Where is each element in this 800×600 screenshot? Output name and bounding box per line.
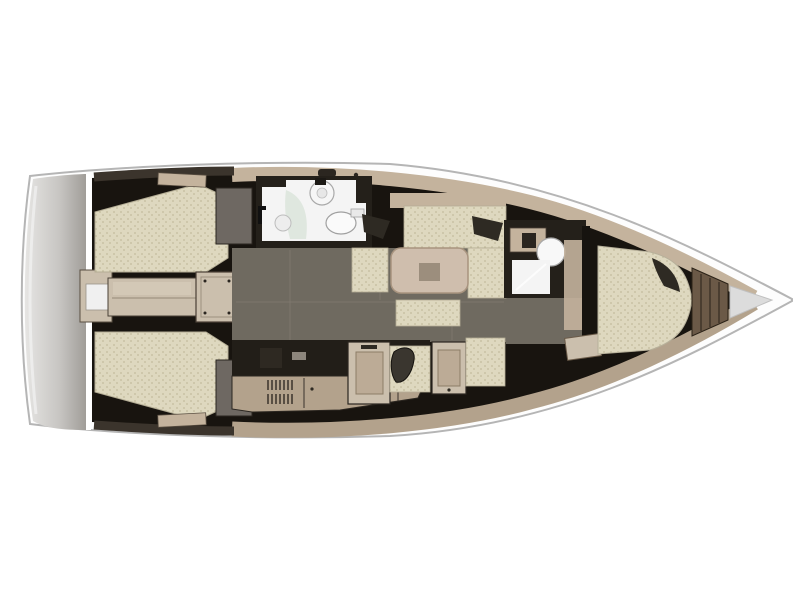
fridge-door-panel [356,352,383,394]
handle-icon [310,387,313,390]
settee-right-bench [468,248,506,298]
aft-head [256,176,372,248]
floor-plan-canvas [0,0,800,600]
fridge-handle [361,345,377,349]
cabin-shelf [158,173,207,187]
galley-sink [260,348,282,368]
galley-stove-icon [292,352,306,360]
toilet-tank [351,209,364,217]
companionway-landing [196,272,238,322]
washbasin-drain-icon [317,188,327,198]
sole-plank [113,282,191,295]
screw-icon [228,280,231,283]
vanity-sink [522,233,536,248]
deck-hatch-icon [318,169,336,177]
wardrobe [216,188,252,244]
nav-station [390,338,505,394]
shower-drain-icon [275,215,291,231]
handle-icon [447,388,450,391]
settee-bottom-bench [396,300,460,326]
screw-icon [228,312,231,315]
cabin-door-panel [565,334,602,361]
settee-left-bench [352,248,388,292]
salon-table-inlay [419,263,440,281]
yacht-floor-plan [0,0,800,600]
cabin-shelf [158,413,207,427]
chart-table-panel [438,350,460,386]
tap-icon [258,210,262,224]
starboard-settee [466,338,505,386]
tap-icon [258,206,266,210]
stern-hatch [86,284,108,310]
faucet-icon [315,178,326,185]
screw-icon [204,280,207,283]
screw-icon [204,312,207,315]
